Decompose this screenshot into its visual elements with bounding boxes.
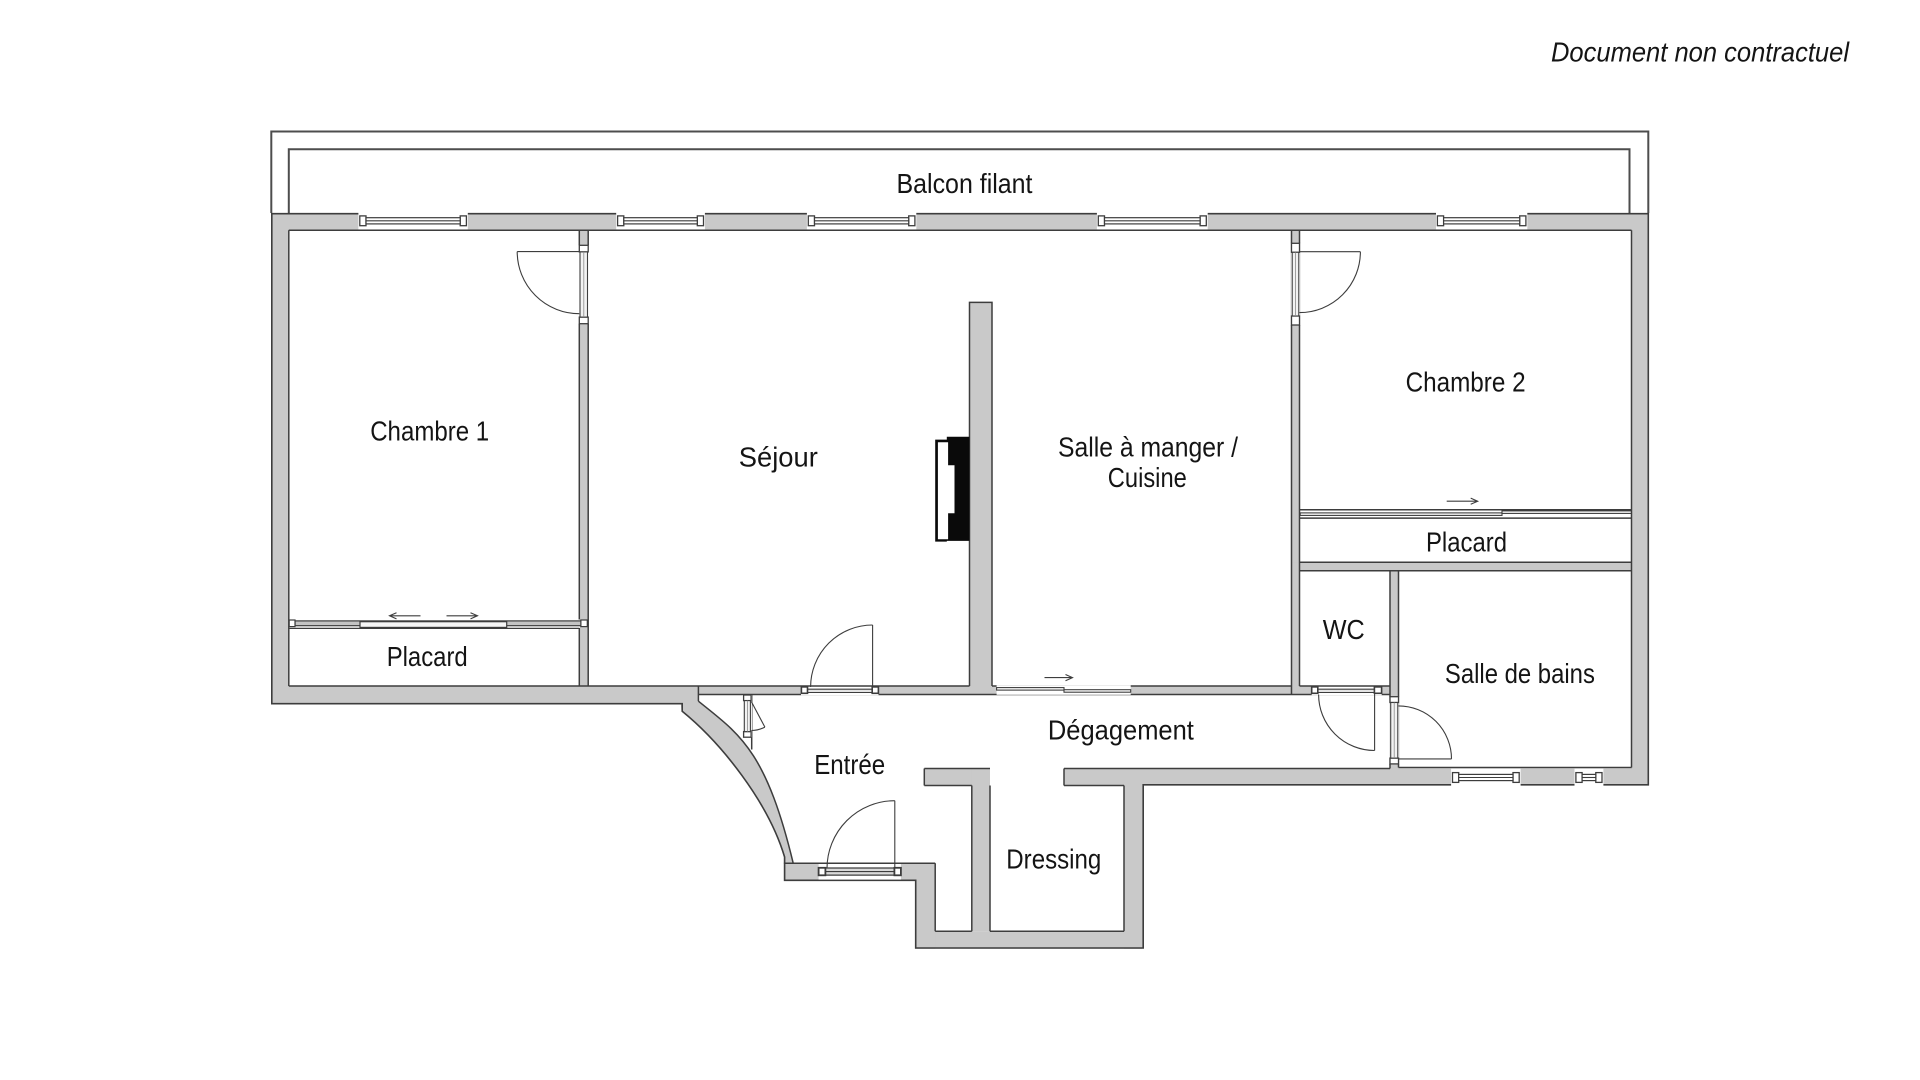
svg-text:Salle de bains: Salle de bains [1445, 658, 1595, 689]
svg-text:Balcon filant: Balcon filant [897, 168, 1033, 199]
svg-text:WC: WC [1323, 614, 1365, 645]
svg-text:Placard: Placard [387, 641, 468, 672]
svg-text:Dégagement: Dégagement [1048, 715, 1194, 746]
svg-text:Chambre 2: Chambre 2 [1406, 366, 1526, 397]
svg-text:Salle à manger /: Salle à manger / [1058, 432, 1238, 463]
svg-text:Entrée: Entrée [814, 749, 885, 780]
svg-text:Placard: Placard [1426, 527, 1507, 558]
svg-text:Dressing: Dressing [1006, 844, 1101, 875]
svg-text:Document non contractuel: Document non contractuel [1551, 37, 1850, 68]
svg-text:Séjour: Séjour [739, 441, 818, 472]
svg-text:Cuisine: Cuisine [1108, 462, 1187, 493]
svg-text:Chambre 1: Chambre 1 [370, 416, 489, 447]
